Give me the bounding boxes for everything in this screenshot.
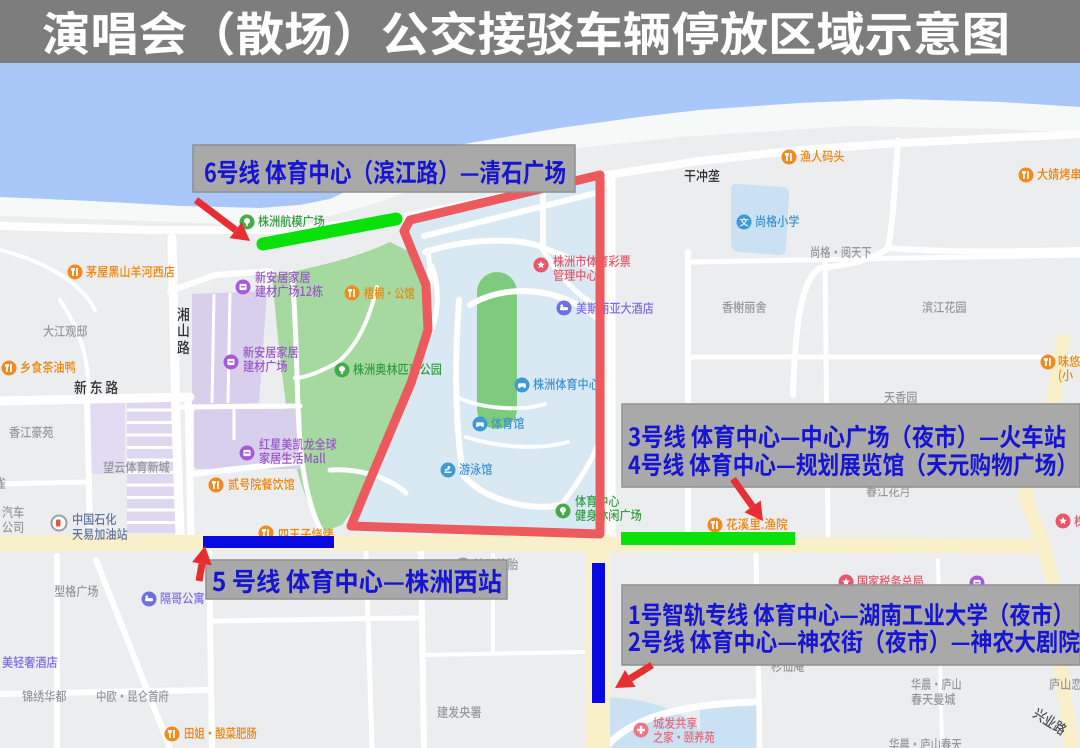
svg-text:株洲航模广场: 株洲航模广场 [258, 211, 325, 230]
svg-text:锦绣华都: 锦绣华都 [22, 686, 67, 705]
svg-text:干冲垄: 干冲垄 [684, 166, 720, 186]
svg-text:梧桐·公馆: 梧桐·公馆 [364, 283, 415, 302]
svg-text:健身休闲广场: 健身休闲广场 [575, 505, 642, 524]
svg-text:香江豪苑: 香江豪苑 [9, 422, 54, 441]
svg-text:渔人码头: 渔人码头 [800, 146, 845, 165]
svg-text:天易加油站: 天易加油站 [72, 524, 128, 543]
svg-text:6号线 体育中心（滨江路）—清石广场: 6号线 体育中心（滨江路）—清石广场 [204, 153, 566, 190]
svg-text:隔哥公寓: 隔哥公寓 [160, 588, 205, 607]
svg-text:贰号院餐饮馆: 贰号院餐饮馆 [228, 474, 295, 493]
svg-text:望云体育新城: 望云体育新城 [103, 457, 170, 476]
svg-text:株洲体育中心: 株洲体育中心 [533, 374, 600, 393]
svg-text:5 号线 体育中心—株洲西站: 5 号线 体育中心—株洲西站 [212, 562, 502, 599]
svg-text:天香园: 天香园 [884, 387, 917, 406]
svg-text:2号线 体育中心—神农街（夜市）—神农大剧院: 2号线 体育中心—神农街（夜市）—神农大剧院 [628, 623, 1080, 659]
svg-text:香榭丽舍: 香榭丽舍 [722, 297, 767, 316]
svg-text:新 东 路: 新 东 路 [74, 377, 118, 398]
svg-text:管理中心: 管理中心 [553, 265, 598, 284]
svg-text:美轻奢酒店: 美轻奢酒店 [2, 652, 58, 671]
svg-text:尚格小学: 尚格小学 [755, 211, 800, 230]
svg-text:公司: 公司 [2, 517, 24, 536]
svg-text:雀: 雀 [0, 473, 6, 492]
svg-text:大婧烤串: 大婧烤串 [1037, 164, 1080, 183]
svg-text:之家·颐养苑: 之家·颐养苑 [653, 727, 715, 746]
svg-text:(小: (小 [1058, 365, 1073, 384]
svg-text:4号线 体育中心—规划展览馆（天元购物广场）: 4号线 体育中心—规划展览馆（天元购物广场） [628, 446, 1078, 482]
svg-text:美斯丽亚大酒店: 美斯丽亚大酒店 [576, 298, 654, 317]
svg-text:乡食茶油鸭: 乡食茶油鸭 [20, 357, 76, 376]
svg-text:演唱会（散场）公交接驳车辆停放区域示意图: 演唱会（散场）公交接驳车辆停放区域示意图 [42, 0, 1010, 65]
svg-text:华晨·庐山春天: 华晨·庐山春天 [889, 734, 962, 748]
svg-text:茅屋黑山羊河西店: 茅屋黑山羊河西店 [86, 262, 175, 281]
svg-text:体育馆: 体育馆 [491, 413, 524, 432]
svg-text:尚格·阅天下: 尚格·阅天下 [810, 242, 872, 261]
svg-text:滨江花园: 滨江花园 [922, 297, 967, 316]
svg-text:建材广场12栋: 建材广场12栋 [255, 281, 323, 300]
svg-text:游泳馆: 游泳馆 [459, 459, 492, 478]
svg-text:田姐·酸菜肥肠: 田姐·酸菜肥肠 [184, 723, 257, 742]
svg-text:家居生活Mall: 家居生活Mall [259, 448, 326, 467]
svg-text:株: 株 [1074, 511, 1080, 530]
svg-text:建发央署: 建发央署 [437, 702, 482, 721]
svg-text:文: 文 [739, 214, 748, 228]
svg-text:庐山恋: 庐山恋 [1049, 674, 1080, 693]
svg-text:春天曼城: 春天曼城 [911, 689, 956, 708]
svg-text:株洲奥林匹克公园: 株洲奥林匹克公园 [353, 359, 442, 378]
svg-text:建材广场: 建材广场 [243, 356, 288, 375]
svg-text:路: 路 [177, 337, 190, 358]
svg-text:型格广场: 型格广场 [54, 581, 99, 600]
svg-text:大江观邸: 大江观邸 [43, 321, 88, 340]
svg-text:中欧·昆仑首府: 中欧·昆仑首府 [96, 686, 169, 705]
